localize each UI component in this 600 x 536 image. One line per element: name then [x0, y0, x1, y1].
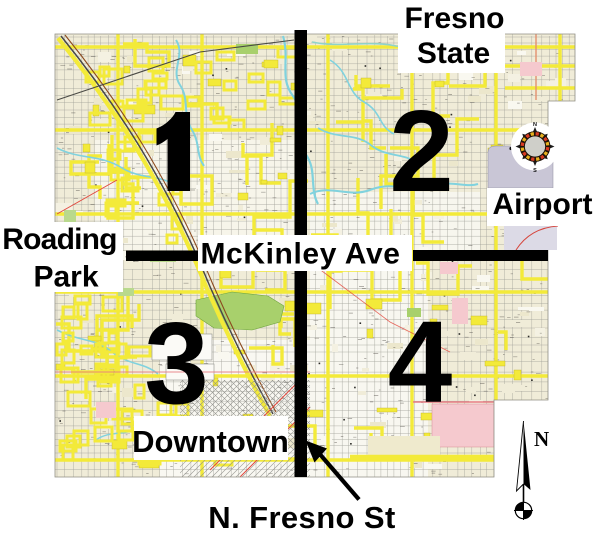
svg-text:Downtown: Downtown	[132, 424, 289, 459]
svg-text:McKinley Ave: McKinley Ave	[200, 238, 400, 271]
svg-text:3: 3	[144, 298, 209, 428]
svg-text:Park: Park	[33, 261, 98, 294]
svg-text:Fresno: Fresno	[404, 2, 504, 35]
svg-text:4: 4	[388, 297, 453, 427]
svg-text:Roading: Roading	[2, 223, 116, 256]
svg-text:N: N	[534, 427, 549, 451]
svg-text:N. Fresno St: N. Fresno St	[208, 500, 395, 535]
svg-text:S: S	[533, 168, 537, 174]
svg-text:2: 2	[389, 86, 454, 216]
svg-text:State: State	[417, 37, 490, 70]
svg-text:Airport: Airport	[493, 188, 593, 221]
svg-text:N: N	[533, 122, 537, 128]
